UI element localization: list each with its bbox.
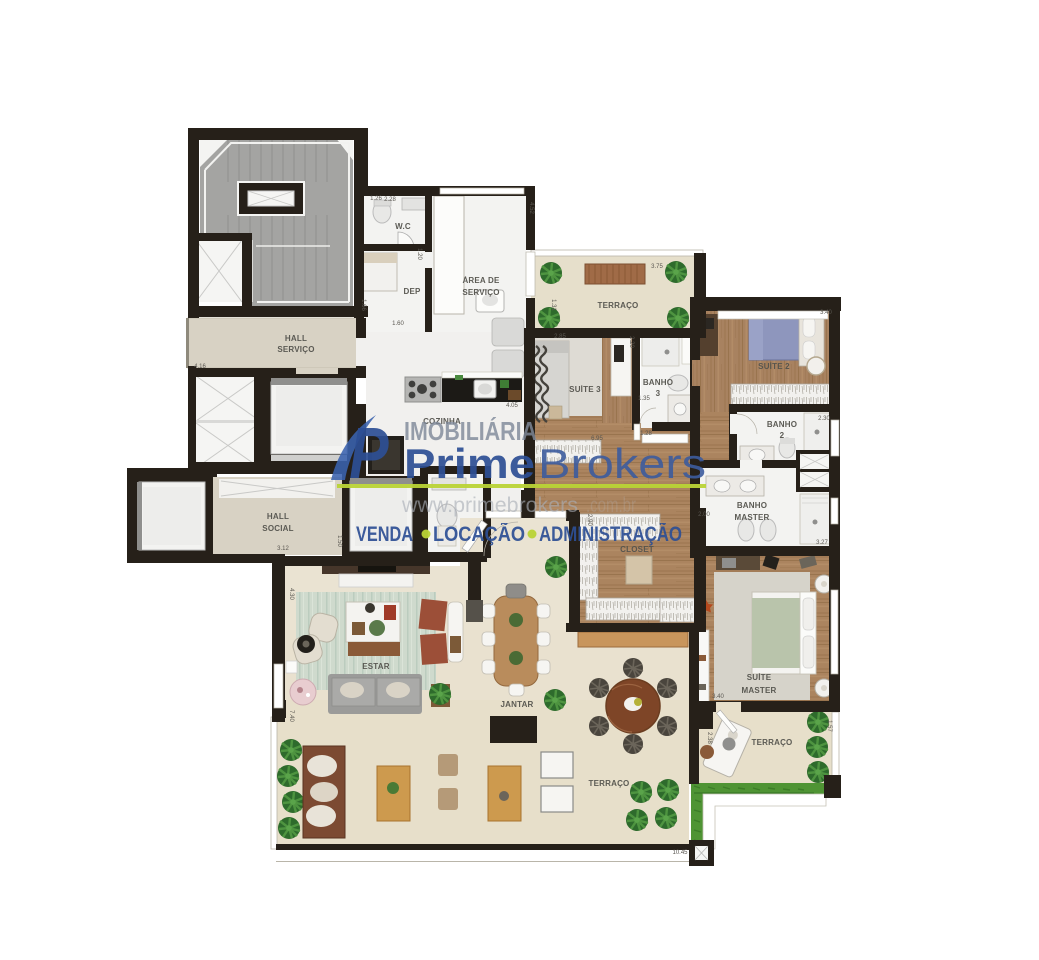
svg-text:1.50: 1.50 xyxy=(336,535,342,547)
svg-text:BANHO: BANHO xyxy=(737,501,767,510)
svg-text:3.12: 3.12 xyxy=(277,546,289,552)
svg-text:1.20: 1.20 xyxy=(416,248,422,260)
svg-text:TERRAÇO: TERRAÇO xyxy=(598,301,639,310)
svg-text:Brokers: Brokers xyxy=(538,440,706,487)
svg-text:HALL: HALL xyxy=(285,334,307,343)
svg-text:TERRAÇO: TERRAÇO xyxy=(752,738,793,747)
svg-text:SUÍTE 2: SUÍTE 2 xyxy=(758,362,790,371)
svg-text:1.26: 1.26 xyxy=(370,196,382,202)
svg-text:.com.br: .com.br xyxy=(586,494,636,517)
svg-text:3.40: 3.40 xyxy=(712,694,724,700)
svg-text:4.16: 4.16 xyxy=(194,364,206,370)
svg-text:2.38: 2.38 xyxy=(706,732,712,744)
svg-text:TERRAÇO: TERRAÇO xyxy=(589,779,630,788)
svg-text:www.primebrokers: www.primebrokers xyxy=(401,494,578,517)
svg-text:10.45: 10.45 xyxy=(672,850,688,856)
svg-text:7.40: 7.40 xyxy=(288,710,294,722)
svg-text:2.28: 2.28 xyxy=(384,197,396,203)
svg-text:JANTAR: JANTAR xyxy=(500,700,533,709)
svg-text:2.00: 2.00 xyxy=(698,512,710,518)
svg-text:1.60: 1.60 xyxy=(392,321,404,327)
svg-text:4.52: 4.52 xyxy=(528,202,534,214)
svg-text:MASTER: MASTER xyxy=(742,686,777,695)
svg-text:2.20: 2.20 xyxy=(628,336,634,348)
svg-text:3: 3 xyxy=(656,389,661,398)
svg-text:VENDA: VENDA xyxy=(356,523,413,546)
svg-text:MASTER: MASTER xyxy=(735,513,770,522)
svg-text:DEP: DEP xyxy=(403,287,421,296)
svg-text:CLOSET: CLOSET xyxy=(620,545,654,554)
svg-text:P: P xyxy=(349,412,388,493)
svg-text:SUÍTE 3: SUÍTE 3 xyxy=(569,385,601,394)
svg-text:3.75: 3.75 xyxy=(651,264,663,270)
svg-text:3.40: 3.40 xyxy=(820,310,832,316)
svg-text:SOCIAL: SOCIAL xyxy=(262,524,293,533)
svg-text:1.57: 1.57 xyxy=(826,720,832,732)
svg-text:2.85: 2.85 xyxy=(554,334,566,340)
svg-text:SERVIÇO: SERVIÇO xyxy=(277,345,314,354)
svg-text:BANHO: BANHO xyxy=(643,378,673,387)
svg-text:SUÍTE: SUÍTE xyxy=(747,673,772,682)
svg-text:4.05: 4.05 xyxy=(506,403,518,409)
svg-text:1.31: 1.31 xyxy=(550,299,556,311)
svg-text:1.28: 1.28 xyxy=(640,431,652,437)
svg-text:SERVIÇO: SERVIÇO xyxy=(462,288,499,297)
svg-text:3.27: 3.27 xyxy=(816,540,828,546)
svg-text:ÁREA DE: ÁREA DE xyxy=(462,276,500,285)
svg-text:4.30: 4.30 xyxy=(288,588,294,600)
svg-text:2: 2 xyxy=(780,431,785,440)
svg-text:ESTAR: ESTAR xyxy=(362,662,390,671)
svg-text:Prime: Prime xyxy=(404,440,535,487)
svg-text:HALL: HALL xyxy=(267,512,289,521)
svg-text:2.30: 2.30 xyxy=(818,416,830,422)
svg-text:1.66: 1.66 xyxy=(360,299,366,311)
svg-text:LOCAÇÃO: LOCAÇÃO xyxy=(433,523,525,546)
svg-text:ADMINISTRAÇÃO: ADMINISTRAÇÃO xyxy=(539,523,682,546)
svg-text:1.35: 1.35 xyxy=(638,396,650,402)
svg-text:W.C: W.C xyxy=(395,222,411,231)
svg-text:BANHO: BANHO xyxy=(767,420,797,429)
